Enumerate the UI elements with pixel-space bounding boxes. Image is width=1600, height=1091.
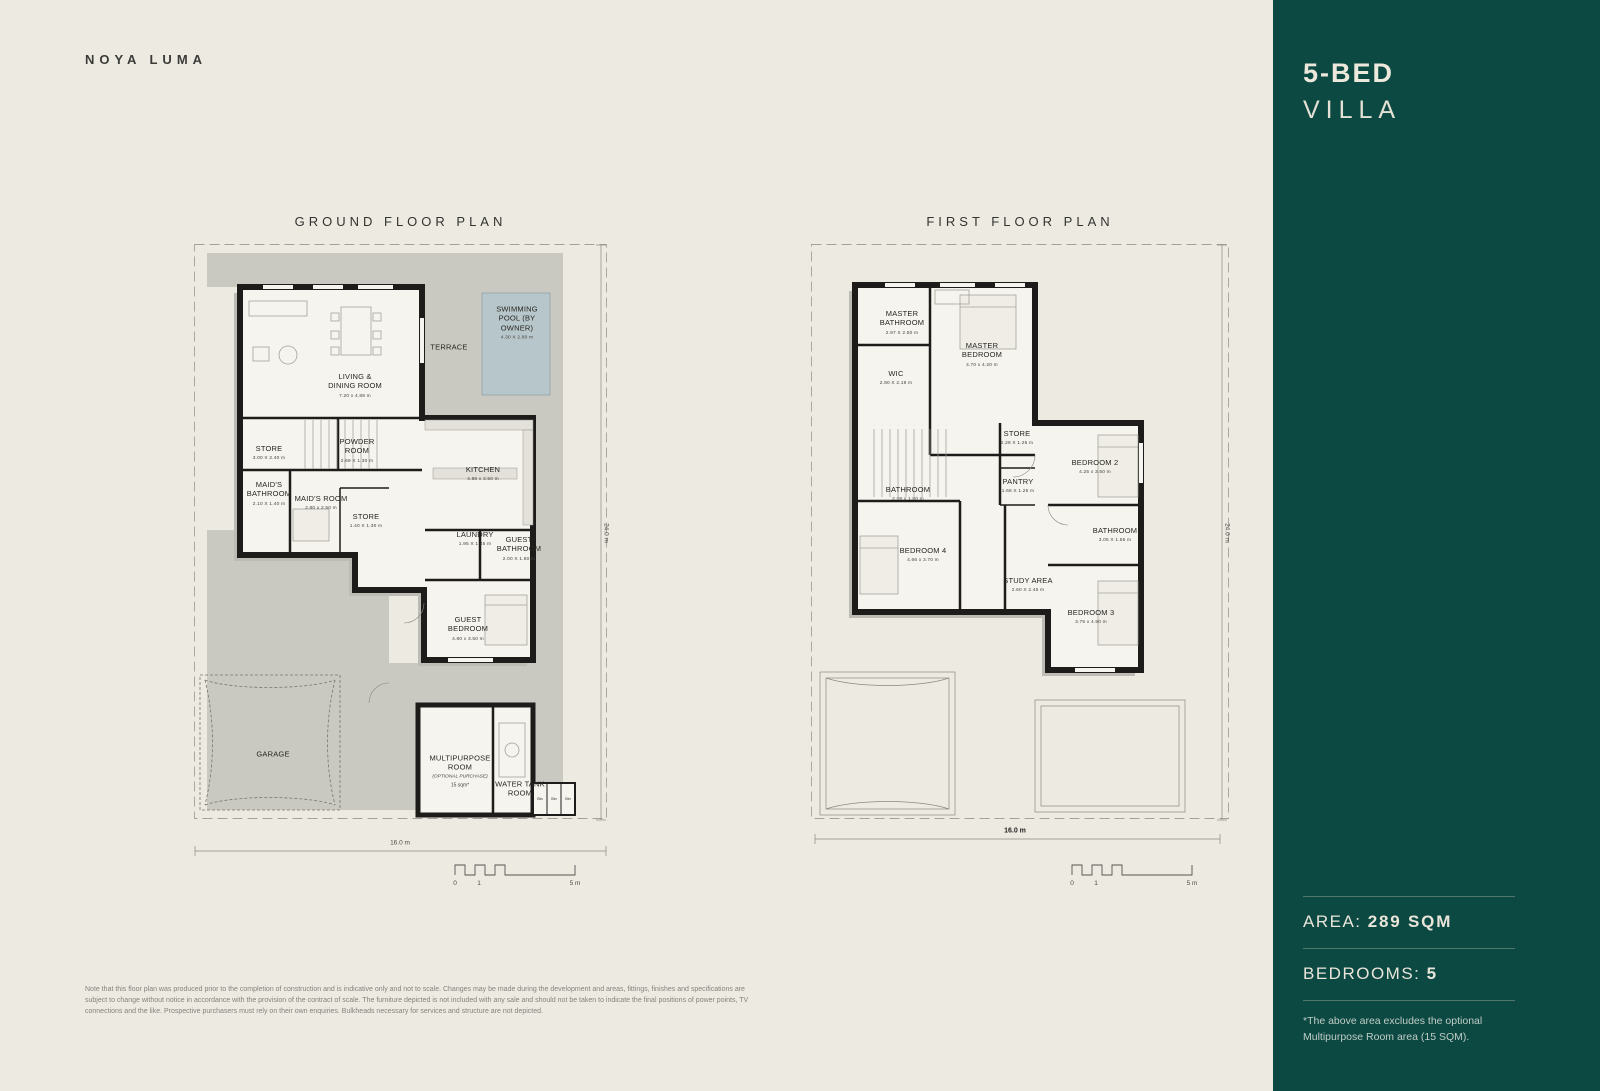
first-floor-title: FIRST FLOOR PLAN bbox=[810, 214, 1230, 229]
spec-list: AREA: 289 SQM BEDROOMS: 5 *The above are… bbox=[1303, 896, 1515, 1046]
unit-type-villa: VILLA bbox=[1303, 96, 1401, 125]
room-label: MAID'S BATHROOM2.10 X 1.40 m bbox=[247, 480, 291, 508]
gf-scale-1: 1 bbox=[477, 880, 481, 887]
room-label: STORE1.40 X 1.30 m bbox=[350, 512, 382, 530]
room-label: GUEST BATHROOM2.00 X 1.80 m bbox=[497, 535, 541, 563]
room-label: STORE3.00 X 2.40 m bbox=[253, 444, 285, 462]
ff-scale-5m: 5 m bbox=[1187, 880, 1198, 887]
room-label: PANTRY1.68 X 1.25 m bbox=[1002, 477, 1034, 495]
room-label: LIVING & DINING ROOM7.20 x 4.88 m bbox=[328, 372, 382, 400]
room-label: LAUNDRY1.95 X 1.45 m bbox=[456, 530, 493, 548]
gf-width-dimension: 16.0 m bbox=[390, 840, 410, 847]
room-label: BEDROOM 33.75 x 4.50 m bbox=[1068, 608, 1115, 626]
gf-height-dimension: 24.0 m bbox=[603, 523, 610, 543]
room-label: MAID'S ROOM2.80 x 2.50 m bbox=[295, 494, 348, 512]
unit-type-title: 5-BED VILLA bbox=[1303, 58, 1401, 125]
room-label: Bin bbox=[565, 797, 570, 801]
room-label: BATHROOM2.08 x 1.80 m bbox=[886, 485, 930, 503]
ground-floor-room-labels: SWIMMING POOL (BY OWNER)4.30 X 2.80 mTER… bbox=[193, 243, 608, 893]
room-label: WATER TANK ROOM bbox=[495, 780, 545, 799]
first-floor-room-labels: MASTER BATHROOM2.97 X 2.50 mMASTER BEDRO… bbox=[810, 243, 1230, 893]
room-label: BEDROOM 44.66 x 3.70 m bbox=[900, 546, 947, 564]
room-label: GARAGE bbox=[256, 749, 289, 758]
ff-width-dimension: 16.0 m bbox=[1004, 828, 1026, 835]
room-label: POWDER ROOM2.69 X 1.30 m bbox=[340, 437, 375, 465]
room-label: Bin bbox=[551, 797, 556, 801]
room-label: GUEST BEDROOM4.80 x 3.50 m bbox=[448, 615, 488, 643]
area-label: AREA: bbox=[1303, 912, 1368, 931]
ground-floor-plan: SWIMMING POOL (BY OWNER)4.30 X 2.80 mTER… bbox=[193, 243, 608, 893]
ground-floor-title: GROUND FLOOR PLAN bbox=[193, 214, 608, 229]
area-row: AREA: 289 SQM bbox=[1303, 897, 1515, 948]
ff-scale-0: 0 bbox=[1070, 880, 1074, 887]
area-value: 289 SQM bbox=[1368, 912, 1452, 931]
room-label: STUDY AREA2.60 X 2.45 m bbox=[1003, 576, 1052, 594]
room-label: Bin bbox=[537, 797, 542, 801]
room-label: STORE2.28 X 1.25 m bbox=[1001, 429, 1033, 447]
brand-logo: NOYA LUMA bbox=[85, 52, 207, 67]
room-label: BEDROOM 24.25 x 3.50 m bbox=[1072, 458, 1119, 476]
room-label: MASTER BEDROOM4.70 x 4.20 m bbox=[962, 341, 1002, 369]
room-label: MASTER BATHROOM2.97 X 2.50 m bbox=[880, 309, 924, 337]
disclaimer-text: Note that this floor plan was produced p… bbox=[85, 984, 750, 1018]
gf-scale-5m: 5 m bbox=[570, 880, 581, 887]
area-footnote: *The above area excludes the optional Mu… bbox=[1303, 1001, 1508, 1046]
first-floor-plan: MASTER BATHROOM2.97 X 2.50 mMASTER BEDRO… bbox=[810, 243, 1230, 893]
room-label: TERRACE bbox=[430, 342, 467, 351]
gf-scale-0: 0 bbox=[453, 880, 457, 887]
ff-height-dimension: 24.0 m bbox=[1224, 523, 1231, 543]
page: NOYA LUMA GROUND FLOOR PLAN FIRST FLOOR … bbox=[0, 0, 1600, 1091]
room-label: BATHROOM3.05 X 1.65 m bbox=[1093, 526, 1137, 544]
room-label: MULTIPURPOSE ROOM(OPTIONAL PURCHASE)15 s… bbox=[429, 754, 490, 789]
bedrooms-row: BEDROOMS: 5 bbox=[1303, 949, 1515, 1000]
room-label: KITCHEN4.88 x 3.50 m bbox=[466, 465, 500, 483]
bedrooms-label: BEDROOMS: bbox=[1303, 964, 1427, 983]
unit-type-beds: 5-BED bbox=[1303, 58, 1401, 89]
info-panel: 5-BED VILLA AREA: 289 SQM BEDROOMS: 5 *T… bbox=[1273, 0, 1600, 1091]
room-label: WIC2.90 X 2.19 m bbox=[880, 369, 912, 387]
bedrooms-value: 5 bbox=[1427, 964, 1438, 983]
ff-scale-1: 1 bbox=[1094, 880, 1098, 887]
room-label: SWIMMING POOL (BY OWNER)4.30 X 2.80 m bbox=[496, 304, 538, 341]
